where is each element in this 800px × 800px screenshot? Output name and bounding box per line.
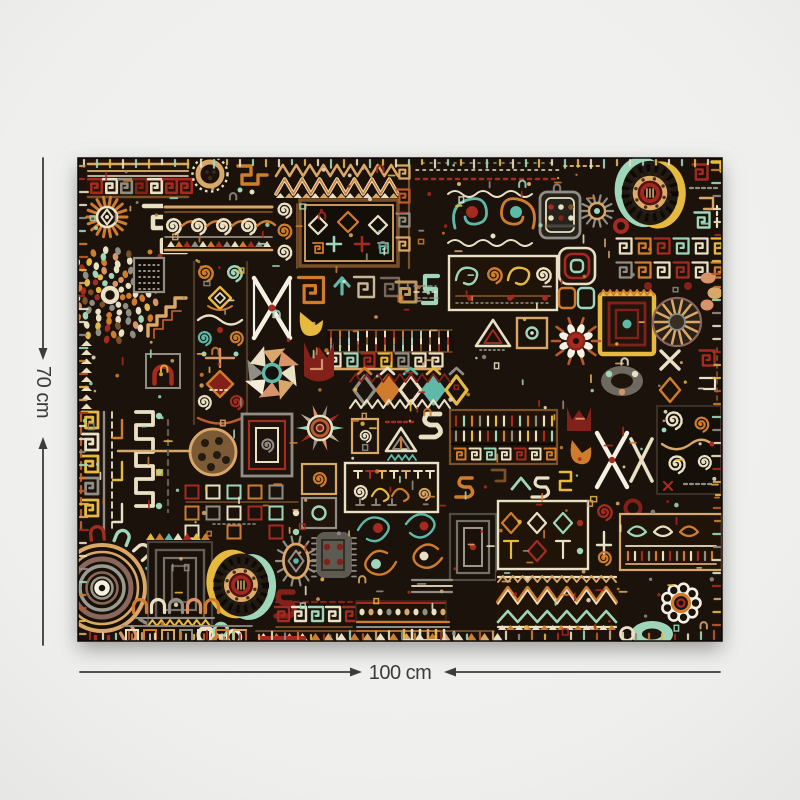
svg-text:70 cm: 70 cm bbox=[32, 366, 54, 418]
svg-text:100 cm: 100 cm bbox=[369, 662, 432, 684]
